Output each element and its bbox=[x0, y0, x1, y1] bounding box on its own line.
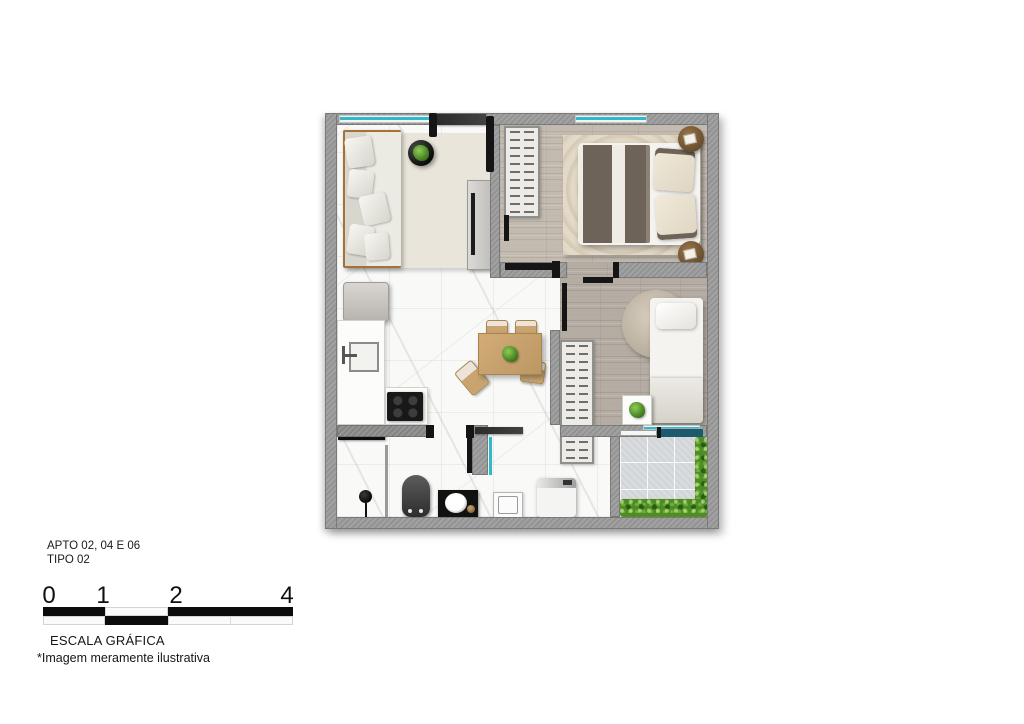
graphic-scale-bar bbox=[43, 607, 293, 625]
book-icon bbox=[683, 133, 697, 145]
floor-plan bbox=[325, 113, 719, 529]
wall-segment bbox=[610, 425, 620, 517]
toilet bbox=[402, 475, 430, 517]
scale-segment bbox=[43, 616, 105, 625]
sofa bbox=[343, 130, 401, 268]
nightstand bbox=[678, 126, 704, 152]
plant-icon bbox=[502, 346, 518, 362]
wall-segment bbox=[337, 425, 428, 437]
single-bed bbox=[650, 298, 703, 423]
scale-tick: 1 bbox=[96, 582, 109, 610]
door-leaf bbox=[486, 116, 494, 172]
bathroom-vanity bbox=[438, 490, 478, 517]
soap-dish-icon bbox=[467, 505, 475, 513]
hedge-icon bbox=[620, 499, 707, 517]
door-leaf bbox=[504, 215, 509, 241]
vanity-sink-icon bbox=[445, 493, 467, 513]
wall-segment bbox=[707, 113, 719, 529]
scale-segment bbox=[105, 607, 168, 616]
bed-pillow bbox=[655, 194, 698, 241]
washing-machine bbox=[537, 478, 576, 517]
glass-partition bbox=[489, 437, 492, 475]
bed-folded-blanket bbox=[650, 378, 703, 423]
coffee-table bbox=[408, 140, 434, 166]
laundry-slider bbox=[475, 427, 523, 434]
wardrobe-divider bbox=[520, 131, 524, 213]
bedroom2-door-leaf bbox=[583, 277, 613, 283]
plant-icon bbox=[629, 402, 645, 418]
wardrobe-divider bbox=[575, 345, 579, 459]
plan-title: APTO 02, 04 E 06 TIPO 02 bbox=[47, 539, 140, 567]
scale-segment bbox=[105, 616, 168, 625]
type-label: TIPO 02 bbox=[47, 553, 140, 567]
bedroom2-door-opening-floor bbox=[567, 262, 613, 278]
entry-door bbox=[437, 114, 486, 125]
tv-icon bbox=[471, 193, 475, 255]
window bbox=[575, 115, 647, 123]
apartment-label: APTO 02, 04 E 06 bbox=[47, 539, 140, 553]
wardrobe-2 bbox=[560, 340, 594, 464]
sofa-pillow bbox=[364, 232, 390, 261]
door-jamb bbox=[552, 261, 560, 278]
wall-segment bbox=[613, 262, 707, 278]
bedroom2-door-leaf bbox=[562, 283, 567, 331]
sliding-door-glass bbox=[661, 428, 703, 437]
sliding-door-frame bbox=[620, 430, 657, 436]
scale-tick: 4 bbox=[280, 582, 293, 610]
bathroom-door-leaf bbox=[467, 437, 472, 473]
door-jamb bbox=[429, 113, 437, 137]
refrigerator bbox=[343, 282, 389, 322]
dining-table bbox=[478, 333, 542, 375]
faucet-icon bbox=[342, 346, 345, 364]
scale-divider bbox=[230, 616, 231, 625]
wall-segment bbox=[325, 113, 337, 529]
scale-label: ESCALA GRÁFICA bbox=[50, 633, 165, 648]
book-icon bbox=[683, 248, 697, 260]
bed-pillow bbox=[653, 148, 696, 193]
bedroom1-door-leaf bbox=[505, 263, 553, 270]
page: APTO 02, 04 E 06 TIPO 02 0 1 2 4 ESCALA … bbox=[0, 0, 1024, 724]
bed-pillow bbox=[656, 303, 696, 329]
kitchen-counter bbox=[337, 320, 385, 425]
side-table bbox=[622, 395, 652, 425]
shower-partition bbox=[385, 445, 388, 517]
cooktop bbox=[387, 392, 423, 421]
wardrobe-1 bbox=[504, 126, 540, 218]
laundry-tank bbox=[493, 492, 523, 519]
bed-blanket bbox=[578, 145, 650, 243]
wall-segment bbox=[550, 330, 560, 425]
double-bed bbox=[578, 143, 700, 245]
door-jamb bbox=[426, 425, 434, 438]
scale-tick: 0 bbox=[42, 582, 55, 610]
window bbox=[339, 115, 433, 123]
scale-segment bbox=[43, 607, 105, 616]
wall-segment bbox=[325, 517, 719, 529]
plant-icon bbox=[413, 145, 429, 161]
kitchen-sink bbox=[349, 342, 379, 372]
scale-tick: 2 bbox=[169, 582, 182, 610]
disclaimer-text: *Imagem meramente ilustrativa bbox=[37, 651, 210, 665]
shower-arm bbox=[365, 503, 367, 517]
sofa-pillow bbox=[344, 135, 375, 169]
shower-head-icon bbox=[359, 490, 372, 503]
door-jamb bbox=[613, 262, 619, 278]
washer-controls bbox=[563, 480, 572, 485]
scale-segment bbox=[168, 607, 293, 616]
scale-segment bbox=[168, 616, 293, 625]
